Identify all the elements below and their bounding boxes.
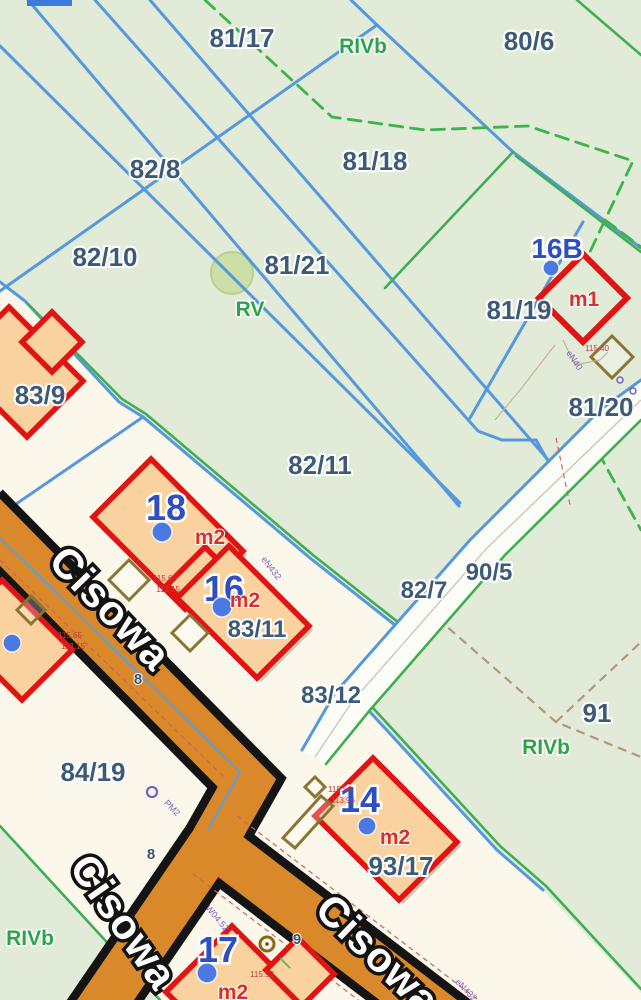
building-usage-label: m2 bbox=[380, 826, 410, 849]
measurement-label: 115.60 bbox=[153, 574, 177, 583]
parcel-label[interactable]: 83/12 bbox=[301, 682, 361, 709]
soil-class-label: RIVb bbox=[339, 35, 387, 58]
soil-class-label: RIVb bbox=[6, 927, 54, 950]
measurement-label: 115.65 bbox=[58, 631, 82, 640]
address-point-icon bbox=[197, 963, 217, 983]
house-number-label[interactable]: 18 bbox=[146, 487, 186, 528]
measurement-label: 113.15 bbox=[156, 585, 180, 594]
parcel-label[interactable]: 82/7 bbox=[401, 577, 448, 604]
selected-label-fragment bbox=[27, 0, 72, 6]
building-usage-label: m2 bbox=[195, 526, 225, 549]
parcel-label[interactable]: 81/18 bbox=[342, 146, 407, 176]
address-point-icon bbox=[3, 634, 21, 652]
building-usage-label: m2 bbox=[230, 589, 260, 612]
building-usage-label: m2 bbox=[218, 981, 248, 1000]
soil-class-label: RV bbox=[236, 298, 265, 321]
soil-class-label: RIVb bbox=[522, 736, 570, 759]
parcel-label[interactable]: 81/19 bbox=[486, 295, 551, 325]
parcel-label[interactable]: 82/10 bbox=[72, 242, 137, 272]
parcel-label[interactable]: 81/20 bbox=[568, 392, 633, 422]
address-point-icon bbox=[152, 522, 172, 542]
measurement-label: 115.40 bbox=[585, 344, 609, 353]
parcel-label[interactable]: 93/17 bbox=[368, 851, 433, 881]
parcel-label[interactable]: 90/5 bbox=[466, 559, 513, 586]
parcel-label[interactable]: 81/21 bbox=[264, 250, 329, 280]
parcel-label[interactable]: 84/19 bbox=[60, 757, 125, 787]
map-canvas[interactable]: 81/17 80/6 82/8 81/18 82/10 81/21 81/19 … bbox=[0, 0, 641, 1000]
parcel-label[interactable]: 91 bbox=[583, 698, 612, 728]
address-number-label: 8 bbox=[134, 671, 142, 688]
parcel-label[interactable]: 81/17 bbox=[209, 23, 274, 53]
well-center bbox=[265, 942, 269, 946]
measurement-label: 113.96 bbox=[331, 796, 355, 805]
address-number-label: 9 bbox=[293, 931, 301, 948]
building-usage-label: m1 bbox=[569, 288, 600, 311]
measurement-label: 115.56 bbox=[328, 785, 352, 794]
measurement-label: 115.52 bbox=[250, 970, 274, 979]
house-number-label[interactable]: 16B bbox=[531, 233, 582, 264]
measurement-label: 113.15 bbox=[61, 642, 85, 651]
parcel-label[interactable]: 82/8 bbox=[130, 154, 181, 184]
map-svg: 81/17 80/6 82/8 81/18 82/10 81/21 81/19 … bbox=[0, 0, 641, 1000]
parcel-label[interactable]: 83/9 bbox=[15, 380, 66, 410]
address-number-label: 8 bbox=[147, 846, 155, 863]
address-point-icon bbox=[358, 817, 376, 835]
address-point-icon bbox=[543, 260, 559, 276]
parcel-label[interactable]: 83/11 bbox=[228, 616, 287, 643]
parcel-label[interactable]: 80/6 bbox=[504, 26, 555, 56]
parcel-label[interactable]: 82/11 bbox=[288, 450, 352, 480]
